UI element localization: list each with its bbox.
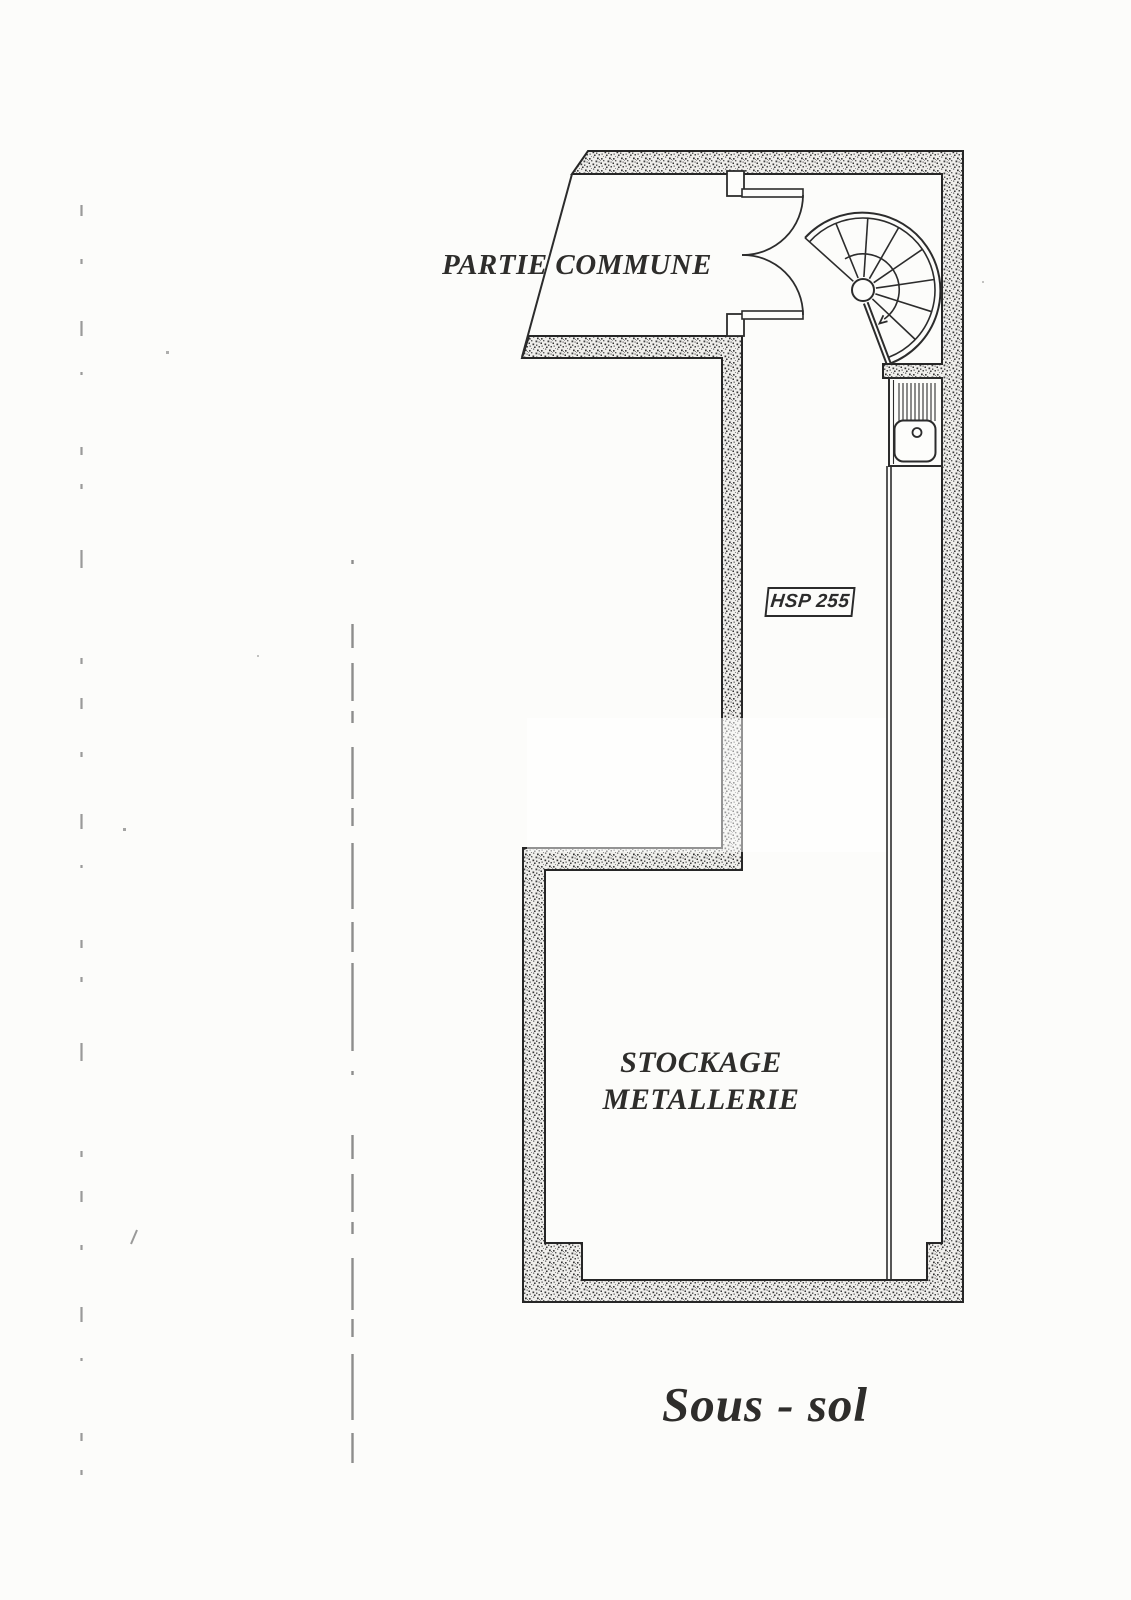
floor-plan-page: PARTIE COMMUNE STOCKAGE METALLERIE HSP 2… (0, 0, 1131, 1600)
spiral-staircase (805, 213, 940, 365)
floor-plan-drawing (0, 0, 1131, 1600)
door-leaf-top (742, 189, 803, 197)
scan-light-patch (527, 718, 886, 852)
label-partie-commune: PARTIE COMMUNE (438, 249, 716, 282)
label-stockage-metallerie: STOCKAGE METALLERIE (553, 1044, 849, 1118)
door-swing-arc-bottom (742, 255, 803, 315)
door-swing-arc-top (742, 195, 803, 255)
double-door (727, 171, 803, 336)
sink-counter (889, 378, 942, 466)
plan-title: Sous - sol (628, 1376, 902, 1433)
sink-drain (913, 428, 922, 437)
sink-bowl (895, 421, 936, 462)
height-label-text: HSP 255 (769, 591, 850, 613)
label-stockage-line1: STOCKAGE (553, 1044, 849, 1081)
door-leaf-bottom (742, 311, 803, 319)
scan-artifact-lines (82, 205, 353, 1525)
stair-newel-post (852, 279, 874, 301)
duct-partition-lines (887, 466, 891, 1280)
label-stockage-line2: METALLERIE (553, 1081, 849, 1118)
height-label-box: HSP 255 (764, 587, 855, 617)
